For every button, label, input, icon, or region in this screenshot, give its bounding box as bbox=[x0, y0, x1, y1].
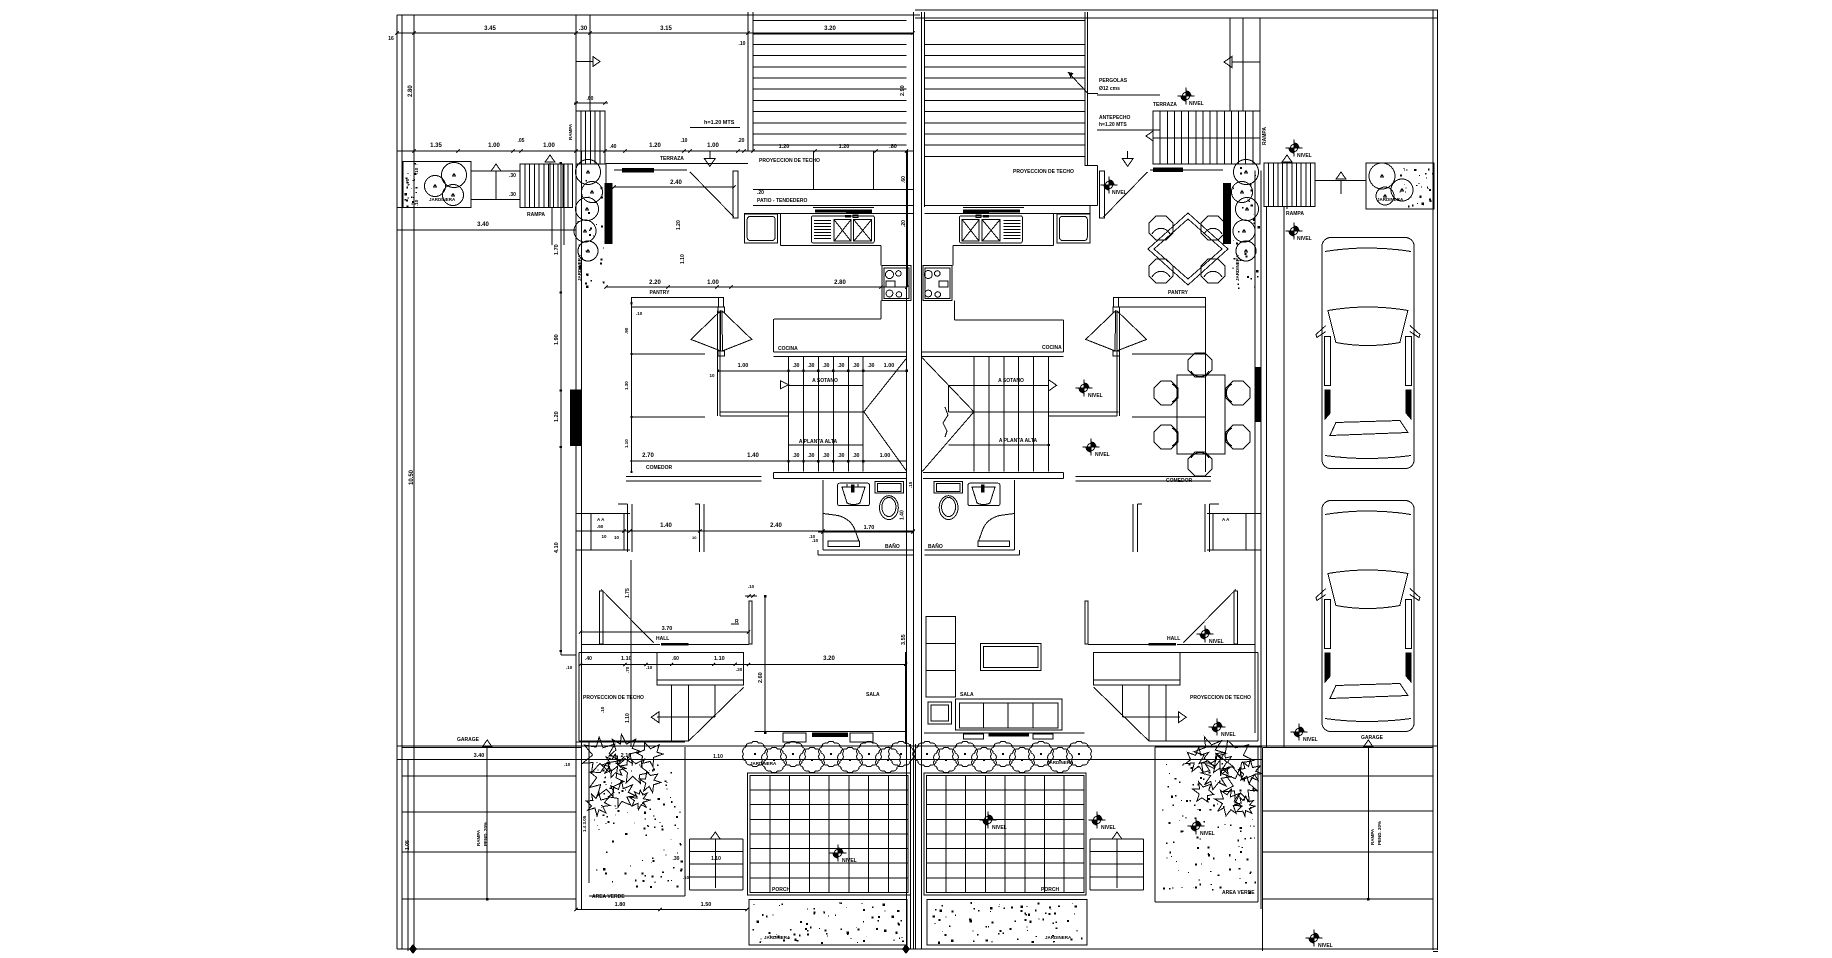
svg-text:BAÑO: BAÑO bbox=[885, 543, 900, 550]
svg-text:10: 10 bbox=[709, 373, 715, 378]
svg-text:.10: .10 bbox=[683, 875, 690, 880]
svg-text:A PLANTA ALTA: A PLANTA ALTA bbox=[799, 439, 838, 445]
svg-text:.10: .10 bbox=[646, 665, 653, 670]
svg-text:1.4 3.05: 1.4 3.05 bbox=[582, 815, 587, 832]
svg-text:RAMPA: RAMPA bbox=[527, 212, 545, 218]
svg-text:1.00: 1.00 bbox=[738, 363, 749, 369]
svg-text:PERGOLAS: PERGOLAS bbox=[1099, 78, 1128, 84]
svg-text:1.10: 1.10 bbox=[711, 856, 721, 862]
svg-text:.10: .10 bbox=[600, 706, 605, 713]
svg-text:1.20: 1.20 bbox=[779, 144, 790, 150]
svg-text:.30: .30 bbox=[853, 363, 860, 369]
svg-text:.30: .30 bbox=[509, 173, 516, 179]
svg-text:SALA: SALA bbox=[866, 692, 880, 698]
svg-text:JARDINERA: JARDINERA bbox=[764, 935, 791, 940]
svg-text:A SOTANO: A SOTANO bbox=[998, 378, 1024, 384]
svg-text:h=1.20 MTS: h=1.20 MTS bbox=[704, 120, 735, 126]
svg-text:A PLANTA ALTA: A PLANTA ALTA bbox=[999, 438, 1038, 444]
svg-text:NIVEL: NIVEL bbox=[1112, 190, 1127, 196]
svg-text:1.70: 1.70 bbox=[554, 244, 560, 255]
svg-text:1.00: 1.00 bbox=[884, 363, 895, 369]
svg-text:JARDINERA: JARDINERA bbox=[1235, 254, 1240, 281]
svg-text:.20: .20 bbox=[901, 220, 907, 227]
svg-text:A A: A A bbox=[1222, 517, 1230, 522]
svg-text:1.10: 1.10 bbox=[625, 713, 631, 723]
svg-text:.60: .60 bbox=[672, 656, 679, 662]
svg-text:NIVEL: NIVEL bbox=[842, 858, 857, 864]
svg-text:2.70: 2.70 bbox=[642, 453, 654, 459]
svg-text:HALL: HALL bbox=[656, 636, 669, 642]
svg-text:GARAGE: GARAGE bbox=[457, 737, 480, 743]
svg-text:.10: .10 bbox=[748, 584, 755, 589]
svg-text:1.20: 1.20 bbox=[676, 220, 682, 230]
svg-text:.10: .10 bbox=[564, 762, 571, 767]
svg-text:1.70: 1.70 bbox=[864, 525, 875, 531]
svg-text:NIVEL: NIVEL bbox=[1297, 236, 1312, 242]
svg-text:.30: .30 bbox=[808, 363, 815, 369]
svg-text:1.00: 1.00 bbox=[707, 280, 719, 286]
svg-text:.30: .30 bbox=[509, 192, 516, 198]
svg-text:AREA VERDE: AREA VERDE bbox=[1222, 890, 1255, 896]
svg-text:1.00: 1.00 bbox=[880, 453, 891, 459]
svg-text:2.60: 2.60 bbox=[758, 672, 764, 683]
svg-text:1.30: 1.30 bbox=[624, 381, 629, 390]
svg-text:RAMPA: RAMPA bbox=[476, 829, 481, 846]
svg-text:.15: .15 bbox=[908, 481, 913, 488]
svg-text:COMEDOR: COMEDOR bbox=[1166, 478, 1193, 484]
svg-text:3.20: 3.20 bbox=[824, 26, 836, 32]
svg-text:16: 16 bbox=[388, 36, 394, 42]
svg-text:.30: .30 bbox=[853, 453, 860, 459]
svg-text:1.20: 1.20 bbox=[649, 143, 661, 149]
svg-text:.10: .10 bbox=[636, 311, 643, 316]
svg-text:NIVEL: NIVEL bbox=[1297, 153, 1312, 159]
svg-text:1.20: 1.20 bbox=[839, 144, 850, 150]
svg-text:NIVEL: NIVEL bbox=[1221, 732, 1236, 738]
svg-text:1.10: 1.10 bbox=[624, 439, 629, 448]
svg-text:1.20: 1.20 bbox=[554, 411, 560, 422]
svg-text:.60: .60 bbox=[587, 96, 594, 102]
svg-text:1.40: 1.40 bbox=[747, 453, 759, 459]
svg-text:NIVEL: NIVEL bbox=[1318, 943, 1333, 949]
svg-text:PATIO - TENDEDERO: PATIO - TENDEDERO bbox=[757, 198, 807, 204]
svg-text:.70: .70 bbox=[405, 178, 410, 185]
svg-text:.40: .40 bbox=[585, 656, 592, 662]
svg-text:PROYECCION DE TECHO: PROYECCION DE TECHO bbox=[1013, 169, 1074, 175]
svg-text:.90: .90 bbox=[624, 327, 629, 334]
svg-text:NIVEL: NIVEL bbox=[1101, 825, 1116, 831]
svg-text:2.80: 2.80 bbox=[834, 280, 846, 286]
svg-text:.30: .30 bbox=[808, 453, 815, 459]
svg-text:1.00: 1.00 bbox=[543, 143, 555, 149]
svg-text:JARDINERA: JARDINERA bbox=[750, 761, 777, 766]
svg-text:NIVEL: NIVEL bbox=[1088, 393, 1103, 399]
svg-text:PANTRY: PANTRY bbox=[1168, 290, 1189, 296]
svg-text:.30: .30 bbox=[838, 363, 845, 369]
svg-text:3.15: 3.15 bbox=[660, 26, 672, 32]
svg-text:NIVEL: NIVEL bbox=[1095, 452, 1110, 458]
svg-text:RAMPA: RAMPA bbox=[1262, 127, 1268, 145]
svg-text:.20: .20 bbox=[757, 190, 764, 196]
svg-text:Ø12 cms: Ø12 cms bbox=[1099, 86, 1120, 92]
svg-text:.40: .40 bbox=[610, 144, 617, 150]
svg-text:.50: .50 bbox=[597, 524, 604, 529]
svg-text:1.00: 1.00 bbox=[707, 143, 719, 149]
svg-text:NIVEL: NIVEL bbox=[1303, 737, 1318, 743]
svg-text:2.80: 2.80 bbox=[408, 85, 414, 97]
svg-text:PROYECCION DE TECHO: PROYECCION DE TECHO bbox=[759, 158, 820, 164]
svg-text:A SOTANO: A SOTANO bbox=[812, 378, 838, 384]
svg-text:.30: .30 bbox=[823, 453, 830, 459]
svg-text:.10: .10 bbox=[681, 138, 688, 144]
svg-text:1.75: 1.75 bbox=[625, 588, 631, 598]
svg-text:1.10: 1.10 bbox=[713, 754, 723, 760]
svg-text:BAÑO: BAÑO bbox=[928, 543, 943, 550]
svg-text:.20: .20 bbox=[736, 667, 743, 672]
svg-text:.05: .05 bbox=[518, 138, 525, 144]
svg-text:.10: .10 bbox=[414, 199, 419, 206]
svg-text:.30: .30 bbox=[838, 453, 845, 459]
svg-text:2.90: 2.90 bbox=[900, 85, 906, 96]
svg-text:1.10: 1.10 bbox=[680, 254, 686, 264]
svg-text:.30: .30 bbox=[793, 453, 800, 459]
svg-text:JARDINERA: JARDINERA bbox=[1377, 197, 1404, 202]
svg-text:10.50: 10.50 bbox=[409, 469, 415, 485]
svg-text:.30: .30 bbox=[793, 363, 800, 369]
svg-text:.30: .30 bbox=[823, 363, 830, 369]
svg-text:1.35: 1.35 bbox=[430, 143, 442, 149]
svg-text:PEND. 20%: PEND. 20% bbox=[1377, 821, 1382, 845]
svg-text:10: 10 bbox=[601, 534, 607, 539]
svg-text:NIVEL: NIVEL bbox=[1200, 831, 1215, 837]
svg-text:JARDINERA: JARDINERA bbox=[429, 197, 456, 202]
svg-text:.30: .30 bbox=[579, 26, 588, 32]
svg-text:.60: .60 bbox=[901, 176, 907, 183]
svg-text:RAMPA: RAMPA bbox=[1286, 211, 1304, 217]
svg-text:PEND. 20%: PEND. 20% bbox=[483, 822, 488, 846]
svg-text:TERRAZA: TERRAZA bbox=[1153, 102, 1177, 108]
svg-text:COCINA: COCINA bbox=[1042, 345, 1062, 351]
svg-text:3.20: 3.20 bbox=[823, 656, 835, 662]
svg-text:NIVEL: NIVEL bbox=[992, 825, 1007, 831]
svg-text:HALL: HALL bbox=[1167, 636, 1180, 642]
svg-text:1.00: 1.00 bbox=[488, 143, 500, 149]
svg-text:.30: .30 bbox=[868, 363, 875, 369]
svg-text:1.50: 1.50 bbox=[701, 902, 712, 908]
svg-text:2.40: 2.40 bbox=[770, 523, 782, 529]
svg-text:1.10: 1.10 bbox=[621, 656, 632, 662]
svg-text:GARAGE: GARAGE bbox=[1361, 735, 1384, 741]
svg-text:.10: .10 bbox=[739, 41, 746, 47]
svg-text:.30: .30 bbox=[673, 856, 680, 862]
svg-text:.80: .80 bbox=[889, 144, 897, 150]
svg-text:RAMPA: RAMPA bbox=[1370, 828, 1375, 845]
svg-text:1.40: 1.40 bbox=[900, 510, 906, 520]
svg-text:.10: .10 bbox=[414, 167, 419, 174]
svg-text:JARDINERA: JARDINERA bbox=[1045, 935, 1072, 940]
svg-text:2.40: 2.40 bbox=[670, 180, 682, 186]
svg-text:.10: .10 bbox=[809, 534, 816, 539]
svg-text:RAMPA: RAMPA bbox=[568, 123, 573, 140]
svg-text:TERRAZA: TERRAZA bbox=[660, 156, 684, 162]
svg-text:JARDINERA: JARDINERA bbox=[1047, 760, 1074, 765]
svg-text:3.45: 3.45 bbox=[484, 26, 496, 32]
svg-text:ANTEPECHO: ANTEPECHO bbox=[1099, 115, 1131, 121]
svg-text:COCINA: COCINA bbox=[778, 346, 798, 352]
svg-text:3.55: 3.55 bbox=[901, 634, 907, 645]
svg-text:SALA: SALA bbox=[960, 692, 974, 698]
svg-text:4.10: 4.10 bbox=[554, 542, 560, 553]
svg-text:3.70: 3.70 bbox=[662, 626, 673, 632]
svg-text:.10: .10 bbox=[566, 665, 573, 670]
svg-text:AREA VERDE: AREA VERDE bbox=[592, 894, 625, 900]
svg-text:1.10: 1.10 bbox=[714, 656, 725, 662]
svg-text:.70: .70 bbox=[625, 666, 630, 673]
svg-text:1.80: 1.80 bbox=[615, 902, 626, 908]
svg-text:A A: A A bbox=[597, 517, 605, 522]
svg-text:2.20: 2.20 bbox=[649, 280, 661, 286]
svg-text:1.40: 1.40 bbox=[660, 523, 672, 529]
svg-text:10: 10 bbox=[692, 535, 697, 540]
svg-text:PORCH: PORCH bbox=[1041, 887, 1059, 893]
svg-text:2.10: 2.10 bbox=[621, 753, 632, 759]
svg-text:PROYECCION DE TECHO: PROYECCION DE TECHO bbox=[583, 695, 644, 701]
svg-text:COMEDOR: COMEDOR bbox=[646, 465, 673, 471]
svg-text:NIVEL: NIVEL bbox=[1189, 101, 1204, 107]
svg-text:.20: .20 bbox=[738, 138, 745, 144]
svg-text:PORCH: PORCH bbox=[772, 887, 790, 893]
svg-text:3.40: 3.40 bbox=[474, 753, 485, 759]
svg-text:10: 10 bbox=[614, 535, 620, 540]
svg-text:NIVEL: NIVEL bbox=[1209, 639, 1224, 645]
svg-text:1.90: 1.90 bbox=[554, 334, 560, 345]
svg-text:PROYECCION DE TECHO: PROYECCION DE TECHO bbox=[1190, 695, 1251, 701]
svg-text:3.40: 3.40 bbox=[477, 222, 489, 228]
svg-text:h=1.20 MTS: h=1.20 MTS bbox=[1099, 122, 1127, 128]
svg-text:PANTRY: PANTRY bbox=[650, 290, 671, 296]
